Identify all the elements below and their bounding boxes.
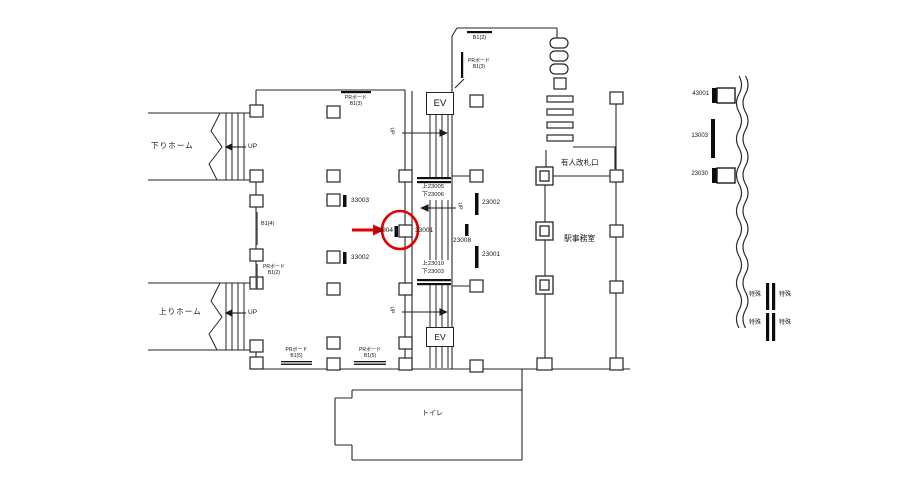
floorplan-drawing: [0, 0, 919, 491]
pillar: [399, 358, 412, 370]
landing-bar: [417, 177, 451, 179]
arrowhead: [226, 144, 232, 150]
pillar: [470, 170, 483, 182]
pillar: [537, 358, 552, 370]
board-23002-bar: [475, 193, 479, 215]
board-23008-bar: [465, 224, 469, 236]
platform-stairs: [209, 113, 244, 350]
pillar: [250, 170, 263, 182]
pr-board-b13-vertical-label: PRボード B1(3): [464, 58, 494, 70]
double-pillar-inner: [540, 171, 549, 181]
board-23004-label: 23004: [370, 227, 393, 235]
pillar: [250, 105, 263, 117]
board-33002-label: 33002: [351, 254, 369, 262]
special-board-label: 特殊: [779, 320, 791, 327]
double-pillar-inner: [540, 280, 549, 290]
esc-up-number: 上23005: [413, 184, 453, 192]
esc-up-glyph-mid: UP: [457, 200, 463, 213]
ad-board-frames: [717, 88, 735, 183]
landing-bar: [417, 283, 451, 285]
pillar-23004-highlighted: [399, 225, 412, 237]
board-23001-label: 23001: [482, 251, 500, 259]
platform-down-label: 下りホーム: [151, 141, 194, 150]
board-23004-bar: [395, 226, 399, 237]
stairs-down-breakline: [209, 113, 222, 180]
up-label-down-platform: UP: [248, 143, 257, 151]
board-33003-bar: [343, 195, 347, 207]
arrowhead: [422, 205, 429, 211]
toilet-label: トイレ: [422, 410, 443, 418]
special-board-label: 特殊: [749, 320, 761, 327]
pr-board-b12-wall-label: PRボード B1(2): [259, 264, 289, 276]
pillar: [250, 357, 263, 369]
platform-up-label: 上りホーム: [159, 307, 202, 316]
esc-up-glyph-bottom: UP: [389, 304, 395, 317]
board-33003-label: 33003: [351, 197, 369, 205]
landing-bar: [417, 279, 451, 281]
board-23001-bar: [475, 246, 479, 268]
pillar: [610, 281, 623, 293]
pillar: [470, 95, 483, 107]
pr-board-location: B1(5): [279, 353, 314, 359]
station-floorplan: EV EV 下りホーム 上りホーム UP UP B1(4) PRボード B1(2…: [0, 0, 919, 491]
esc-up-glyph-top: UP: [389, 125, 395, 138]
pillar: [610, 358, 623, 370]
escalator-bottom-labels: 上23010 下23003: [413, 261, 453, 277]
pr-board-b15-bar: [354, 364, 386, 365]
esc-treads-top: [430, 113, 448, 177]
board-23002-label: 23002: [482, 199, 500, 207]
landing-bar: [417, 181, 451, 183]
esc-treads-low: [430, 285, 448, 327]
leader-diagonal: [455, 79, 464, 88]
board-23030-frame: [717, 168, 735, 183]
board-special-bar: [766, 313, 769, 341]
pr-board-location: B1(3): [464, 64, 494, 70]
pillar: [399, 170, 412, 182]
board-43001-bar: [712, 88, 717, 103]
pillar: [327, 106, 340, 118]
board-special-bar: [772, 313, 775, 341]
pr-board-b12-top-bar: [467, 31, 492, 33]
pillar: [327, 283, 340, 295]
ticket-gates: [547, 38, 573, 141]
pillar: [610, 225, 623, 237]
board-33001-label: 33001: [415, 227, 433, 235]
pillar: [327, 194, 340, 206]
platform-up-edges: [148, 283, 256, 350]
station-office-label: 駅事務室: [564, 234, 595, 243]
pr-board-b15-label-1: PRボード B1(5): [279, 347, 314, 359]
elevator-box-top: EV: [426, 92, 454, 115]
gate-machine: [547, 96, 573, 102]
pillar: [327, 170, 340, 182]
gate-machine: [547, 109, 573, 115]
arrowhead: [226, 310, 232, 316]
esc-down-number: 下23006: [413, 192, 453, 200]
pr-board-b12-wall-bar: [256, 264, 258, 289]
manned-gate-label: 有人改札口: [561, 158, 599, 167]
escalator-top-labels: 上23005 下23006: [413, 184, 453, 200]
pr-board-b13-bar: [341, 91, 371, 93]
wavy-line: [737, 76, 742, 328]
board-23008-label: 23008: [453, 237, 471, 245]
board-b14-bar: [256, 212, 258, 245]
pillar: [399, 337, 412, 349]
pr-board-b15-bar: [281, 364, 312, 365]
pillar: [610, 170, 623, 182]
pr-board-b13-vertical-bar: [461, 52, 463, 78]
gate-oval: [550, 64, 568, 74]
board-43001-label: 43001: [686, 91, 709, 98]
board-13003-bar: [711, 119, 715, 158]
board-b12-top-label: B1(2): [467, 35, 492, 42]
special-board-label: 特殊: [749, 292, 761, 299]
pillar: [470, 360, 483, 372]
pillar: [250, 195, 263, 207]
arrowhead: [440, 309, 447, 315]
esc-up-number: 上23010: [413, 261, 453, 269]
pr-board-location: B1(2): [259, 270, 289, 276]
gate-machine: [547, 135, 573, 141]
board-b14-label: B1(4): [261, 221, 274, 228]
board-special-bar: [772, 283, 775, 310]
pillar: [610, 92, 623, 104]
pillar: [250, 249, 263, 261]
pr-board-b15-bar: [281, 361, 312, 362]
pillar: [327, 251, 340, 263]
special-board-label: 特殊: [779, 292, 791, 299]
board-43001-frame: [717, 88, 735, 103]
board-special-bar: [766, 283, 769, 310]
pr-board-location: B1(3): [339, 101, 373, 107]
gate-pillar: [554, 78, 566, 89]
pr-board-b13-top-label: PRボード B1(3): [339, 95, 373, 107]
break-lines: [737, 76, 749, 328]
pillar: [327, 337, 340, 349]
esc-treads-below-ev: [430, 345, 448, 368]
arrowhead: [440, 130, 447, 136]
board-23030-label: 23030: [685, 171, 708, 178]
stairs-up-treads: [226, 283, 244, 350]
pr-board-b15-label-2: PRボード B1(5): [352, 347, 388, 359]
pillar: [470, 280, 483, 292]
elevator-box-bottom: EV: [426, 327, 454, 347]
stairs-up-breakline: [209, 283, 222, 350]
pr-board-location: B1(5): [352, 353, 388, 359]
gate-oval: [550, 38, 568, 48]
gate-oval: [550, 51, 568, 61]
wavy-line: [743, 76, 748, 328]
shaft-walls: [405, 36, 452, 369]
elevator-label: EV: [434, 332, 445, 342]
esc-down-number: 下23003: [413, 269, 453, 277]
up-label-up-platform: UP: [248, 309, 257, 317]
pillar: [250, 340, 263, 352]
board-23030-bar: [712, 168, 717, 183]
pillar: [327, 358, 340, 370]
pr-board-b15-bar: [354, 361, 386, 362]
double-pillar-inner: [540, 226, 549, 236]
pillar: [399, 283, 412, 295]
elevator-label: EV: [434, 98, 447, 109]
gate-machine: [547, 122, 573, 128]
board-13003-label: 13003: [685, 133, 708, 140]
board-33002-bar: [343, 252, 347, 264]
